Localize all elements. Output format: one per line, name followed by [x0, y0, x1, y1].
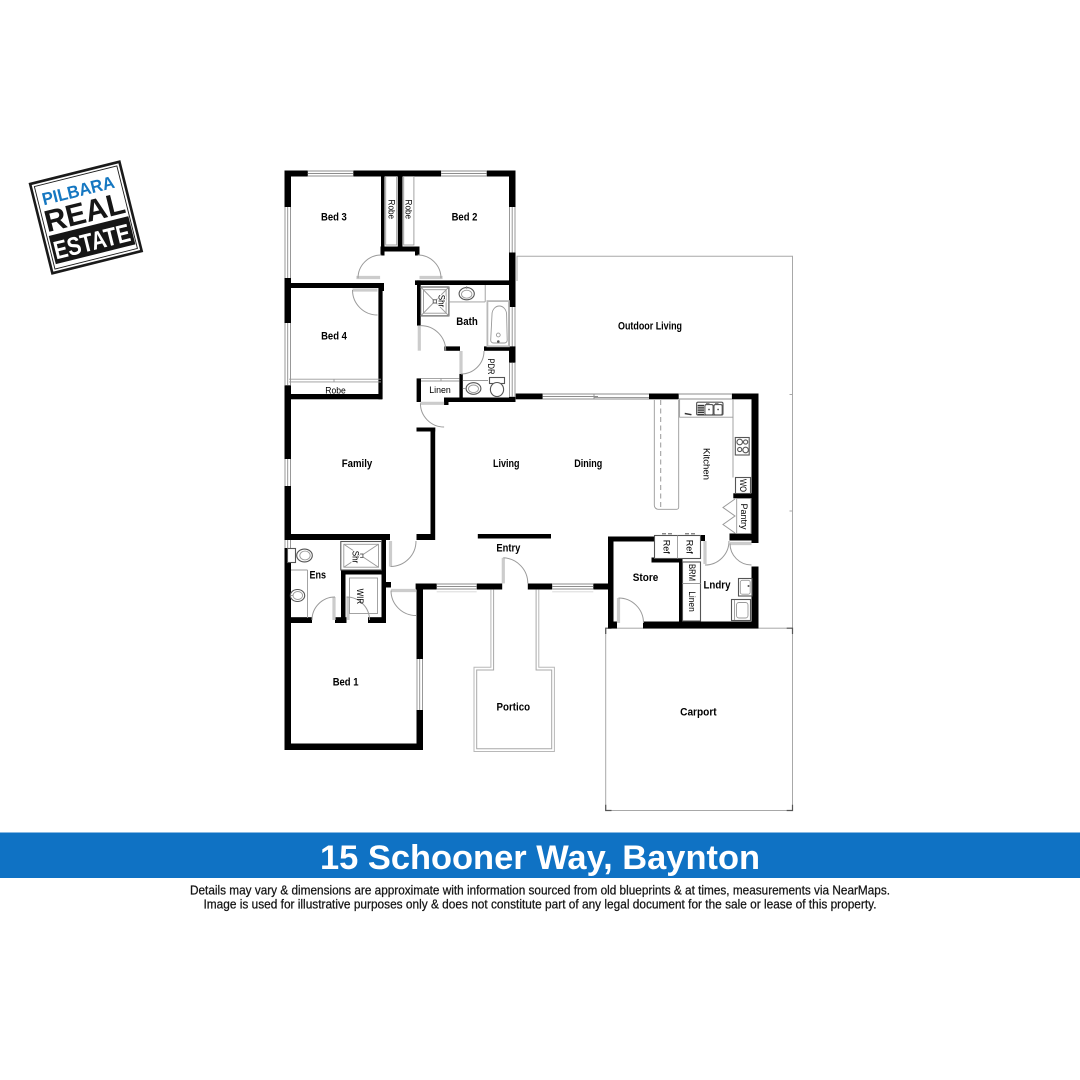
- svg-text:PDR: PDR: [486, 359, 496, 375]
- svg-text:Bed 4: Bed 4: [321, 331, 347, 343]
- svg-text:Image is used for illustrative: Image is used for illustrative purposes …: [204, 898, 877, 912]
- svg-text:Pantry: Pantry: [739, 504, 749, 530]
- svg-text:Portico: Portico: [497, 701, 531, 713]
- svg-text:WO: WO: [738, 479, 748, 492]
- svg-text:15 Schooner Way, Baynton: 15 Schooner Way, Baynton: [320, 839, 760, 877]
- svg-text:Shr: Shr: [437, 295, 447, 308]
- svg-text:Dining: Dining: [574, 458, 602, 470]
- svg-text:Shr: Shr: [351, 551, 361, 564]
- svg-text:Family: Family: [342, 458, 373, 470]
- svg-text:Ens: Ens: [310, 569, 327, 581]
- svg-text:Robe: Robe: [325, 386, 346, 396]
- svg-text:Carport: Carport: [680, 707, 717, 719]
- svg-text:BRM: BRM: [687, 564, 697, 581]
- svg-text:Bath: Bath: [456, 316, 478, 328]
- svg-text:Bed 2: Bed 2: [452, 212, 478, 224]
- svg-text:Linen: Linen: [429, 385, 451, 395]
- svg-text:Kitchen: Kitchen: [702, 448, 712, 480]
- svg-text:Bed 1: Bed 1: [333, 677, 359, 689]
- svg-text:Details may vary & dimensions: Details may vary & dimensions are approx…: [190, 883, 890, 897]
- svg-text:Robe: Robe: [386, 200, 396, 220]
- svg-text:Lndry: Lndry: [704, 579, 732, 591]
- svg-text:Store: Store: [633, 572, 659, 584]
- svg-text:Linen: Linen: [687, 591, 697, 612]
- svg-text:Entry: Entry: [496, 542, 521, 554]
- svg-text:Ref: Ref: [685, 540, 695, 554]
- svg-text:Living: Living: [493, 458, 520, 470]
- svg-text:Ref: Ref: [662, 540, 672, 554]
- svg-text:Bed 3: Bed 3: [321, 212, 347, 224]
- svg-text:WIR: WIR: [355, 589, 365, 605]
- svg-text:Robe: Robe: [403, 200, 413, 220]
- svg-text:Outdoor Living: Outdoor Living: [618, 320, 682, 332]
